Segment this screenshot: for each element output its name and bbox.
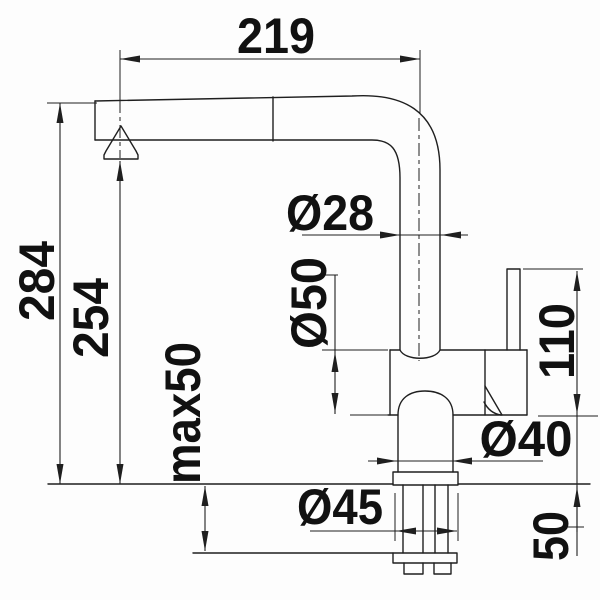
mounting-nut <box>393 553 457 563</box>
hose-stub-left <box>404 563 423 574</box>
dim-flange-diameter: Ø45 <box>297 479 458 541</box>
threaded-shank-and-hoses <box>403 485 448 553</box>
lever-handle <box>507 269 520 350</box>
technical-drawing-canvas: 219 284 254 max50 Ø28 Ø50 <box>0 0 600 600</box>
dim-label-lever-height: 110 <box>529 303 585 379</box>
dim-label-counter-thickness: max50 <box>155 342 211 484</box>
base-flange <box>393 472 458 485</box>
dim-outlet-height: 254 <box>63 161 124 484</box>
dim-label-shank-length: 50 <box>523 511 579 561</box>
dim-label-outlet-height: 254 <box>63 278 119 358</box>
dim-lever-height: 110 <box>523 269 598 532</box>
dim-label-body-diameter: Ø50 <box>281 257 337 349</box>
faucet-dimension-drawing: 219 284 254 max50 Ø28 Ø50 <box>0 0 600 600</box>
dim-label-overall-height: 284 <box>9 241 65 321</box>
body-top-edge <box>390 350 527 358</box>
dim-counter-thickness: max50 <box>155 342 211 551</box>
spout-top-and-outer-bend <box>95 96 440 350</box>
dim-label-pipe-diameter: Ø28 <box>286 185 374 241</box>
dim-label-spout-reach: 219 <box>237 8 315 64</box>
aerator-nozzle <box>104 126 138 159</box>
dim-body-diameter: Ø50 <box>281 257 388 415</box>
spout-bottom-and-inner-bend <box>95 140 400 350</box>
base-cylinder <box>398 415 453 472</box>
dim-label-base-diameter: Ø40 <box>480 411 573 467</box>
hose-stub-right <box>434 563 451 574</box>
dim-shank-length: 50 <box>523 486 584 561</box>
dim-label-flange-diameter: Ø45 <box>297 479 383 535</box>
